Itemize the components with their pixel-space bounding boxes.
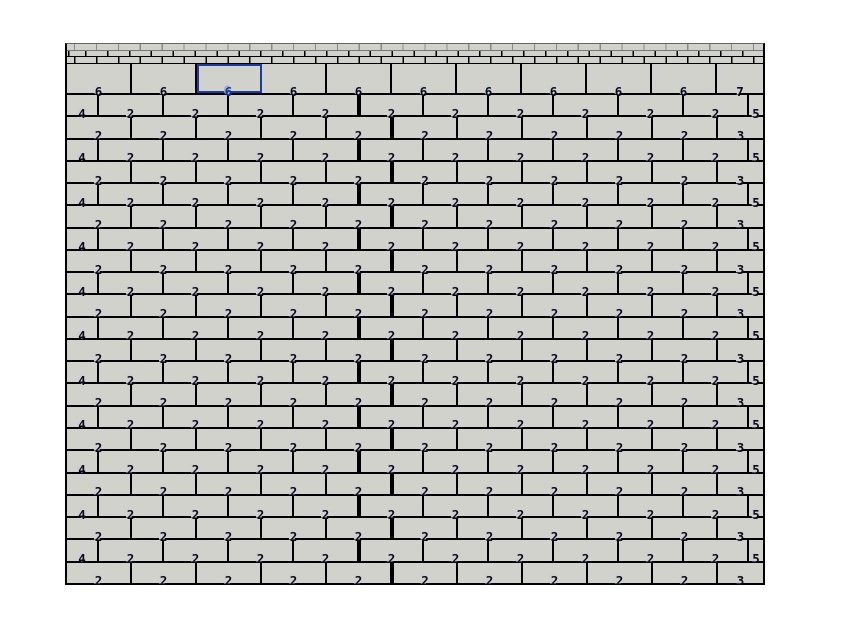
grid-cell[interactable]: 3 xyxy=(718,340,763,360)
grid-cell[interactable]: 2 xyxy=(523,117,588,137)
grid-cell[interactable]: 2 xyxy=(229,318,294,338)
grid-cell[interactable]: 2 xyxy=(523,429,588,449)
grid-cell[interactable]: 2 xyxy=(458,563,523,583)
grid-row-four: 422222222225 xyxy=(67,95,763,117)
grid-cell[interactable]: 2 xyxy=(653,429,718,449)
grid-cell[interactable]: 2 xyxy=(294,318,359,338)
grid-cell[interactable]: 2 xyxy=(361,451,424,471)
grid-cell[interactable]: 2 xyxy=(653,251,718,271)
grid-cell[interactable]: 2 xyxy=(619,362,684,382)
grid-cell[interactable]: 2 xyxy=(588,429,653,449)
grid-cell[interactable]: 5 xyxy=(749,451,763,471)
grid-cell[interactable]: 2 xyxy=(424,229,489,249)
grid-cell-label: 2 xyxy=(355,575,363,588)
grid-cell[interactable]: 2 xyxy=(197,340,262,360)
grid-cell[interactable]: 2 xyxy=(424,540,489,560)
grid-cell[interactable]: 2 xyxy=(67,563,132,583)
grid-cell[interactable]: 2 xyxy=(588,117,653,137)
grid-cell[interactable]: 2 xyxy=(164,451,229,471)
grid-cell[interactable]: 2 xyxy=(458,384,523,404)
grid-cell[interactable]: 2 xyxy=(684,229,749,249)
grid-cell[interactable]: 3 xyxy=(718,518,763,538)
grid-cell[interactable]: 2 xyxy=(229,95,294,115)
grid-cell[interactable]: 2 xyxy=(653,518,718,538)
grid-cell[interactable]: 2 xyxy=(294,496,359,516)
grid-cell[interactable]: 2 xyxy=(458,340,523,360)
grid-cell[interactable]: 6 xyxy=(392,64,457,93)
grid-cell[interactable]: 2 xyxy=(197,429,262,449)
grid-cell[interactable]: 2 xyxy=(394,429,458,449)
grid-cell[interactable]: 2 xyxy=(554,140,619,160)
grid-cell[interactable]: 2 xyxy=(132,429,197,449)
grid-cell[interactable]: 2 xyxy=(554,496,619,516)
grid-cell[interactable]: 2 xyxy=(361,318,424,338)
grid-cell[interactable]: 2 xyxy=(523,474,588,494)
grid-cell[interactable]: 2 xyxy=(394,563,458,583)
grid-cell[interactable]: 2 xyxy=(684,273,749,293)
grid-cell[interactable]: 2 xyxy=(424,273,489,293)
grid-cell[interactable]: 2 xyxy=(67,340,132,360)
grid-cell[interactable]: 2 xyxy=(523,251,588,271)
grid-cell[interactable]: 2 xyxy=(294,229,359,249)
grid-cell[interactable]: 2 xyxy=(99,540,164,560)
grid-cell[interactable]: 2 xyxy=(197,518,262,538)
grid-cell[interactable]: 4 xyxy=(67,184,99,204)
grid-cell-label: 2 xyxy=(160,575,168,588)
grid-cell[interactable]: 2 xyxy=(164,496,229,516)
grid-cell[interactable]: 2 xyxy=(458,162,523,182)
grid-cell[interactable]: 2 xyxy=(327,251,392,271)
grid-cell[interactable]: 2 xyxy=(229,273,294,293)
grid-cell[interactable]: 2 xyxy=(262,295,327,315)
grid-cell[interactable]: 2 xyxy=(653,117,718,137)
grid-cell[interactable]: 2 xyxy=(619,273,684,293)
grid-cell[interactable]: 2 xyxy=(424,140,489,160)
grid-cell[interactable]: 2 xyxy=(229,140,294,160)
grid-cell[interactable]: 2 xyxy=(99,407,164,427)
grid-cell[interactable]: 2 xyxy=(653,206,718,226)
grid-cell[interactable]: 2 xyxy=(132,206,197,226)
grid-cell[interactable]: 2 xyxy=(67,251,132,271)
grid-cell[interactable]: 2 xyxy=(197,295,262,315)
grid-cell[interactable]: 2 xyxy=(164,140,229,160)
grid-cell[interactable]: 7 xyxy=(717,64,763,93)
grid-cell[interactable]: 2 xyxy=(588,563,653,583)
grid-cell[interactable]: 6 xyxy=(457,64,522,93)
grid-cell[interactable]: 2 xyxy=(523,563,588,583)
grid-cell[interactable]: 2 xyxy=(294,184,359,204)
grid-cell[interactable]: 3 xyxy=(718,251,763,271)
grid-cell[interactable]: 2 xyxy=(619,540,684,560)
grid-cell[interactable]: 2 xyxy=(67,429,132,449)
grid-cell[interactable]: 3 xyxy=(718,474,763,494)
grid-cell[interactable]: 5 xyxy=(749,229,763,249)
grid-cell[interactable]: 2 xyxy=(197,384,262,404)
grid-cell[interactable]: 2 xyxy=(394,117,458,137)
grid-cell[interactable]: 2 xyxy=(653,295,718,315)
grid-cell[interactable]: 2 xyxy=(523,162,588,182)
grid-cell[interactable]: 2 xyxy=(197,251,262,271)
grid-cell[interactable]: 2 xyxy=(394,384,458,404)
grid-cell[interactable]: 5 xyxy=(749,362,763,382)
grid-row-two: 22222222223 xyxy=(67,429,763,451)
grid-cell[interactable]: 2 xyxy=(424,318,489,338)
grid-row-two: 22222222223 xyxy=(67,162,763,184)
grid-cell[interactable]: 2 xyxy=(489,407,554,427)
grid-cell[interactable]: 2 xyxy=(588,340,653,360)
grid-cell[interactable]: 4 xyxy=(67,140,99,160)
grid-row-four: 422222222225 xyxy=(67,229,763,251)
grid-cell[interactable]: 2 xyxy=(262,474,327,494)
grid-cell[interactable]: 2 xyxy=(67,117,132,137)
grid-cell[interactable]: 2 xyxy=(229,407,294,427)
grid-cell[interactable]: 2 xyxy=(489,540,554,560)
grid-cell-label: 2 xyxy=(681,575,689,588)
grid-cell[interactable]: 6 xyxy=(262,64,327,93)
grid-cell[interactable]: 2 xyxy=(394,206,458,226)
grid-cell[interactable]: 2 xyxy=(132,251,197,271)
grid-cell[interactable]: 2 xyxy=(294,540,359,560)
grid-cell[interactable]: 2 xyxy=(164,407,229,427)
grid-cell[interactable]: 2 xyxy=(132,384,197,404)
grid-cell[interactable]: 2 xyxy=(684,496,749,516)
grid-cell[interactable]: 2 xyxy=(653,162,718,182)
header-course-1 xyxy=(67,44,763,51)
grid-cell[interactable]: 2 xyxy=(684,451,749,471)
grid-cell[interactable]: 5 xyxy=(749,95,763,115)
grid-cell[interactable]: 2 xyxy=(394,251,458,271)
grid-cell[interactable]: 2 xyxy=(229,451,294,471)
grid-cell[interactable]: 2 xyxy=(327,117,392,137)
grid-cell[interactable]: 2 xyxy=(361,407,424,427)
grid-cell[interactable]: 2 xyxy=(164,95,229,115)
grid-cell[interactable]: 2 xyxy=(394,295,458,315)
grid-cell[interactable]: 6 xyxy=(587,64,652,93)
grid-row-two: 22222222223 xyxy=(67,518,763,540)
grid-cell[interactable]: 2 xyxy=(684,95,749,115)
grid-cell[interactable]: 3 xyxy=(718,384,763,404)
grid-cell[interactable]: 2 xyxy=(262,518,327,538)
grid-cell[interactable]: 3 xyxy=(718,162,763,182)
grid-cell-label: 2 xyxy=(616,575,624,588)
grid-cell[interactable]: 3 xyxy=(718,429,763,449)
grid-cell[interactable]: 2 xyxy=(361,496,424,516)
grid-cell[interactable]: 2 xyxy=(327,518,392,538)
grid-cell[interactable]: 2 xyxy=(458,518,523,538)
grid-cell[interactable]: 5 xyxy=(749,184,763,204)
grid-cell[interactable]: 6 xyxy=(132,64,197,93)
grid-cell[interactable]: 2 xyxy=(458,117,523,137)
grid-cell[interactable]: 2 xyxy=(619,229,684,249)
grid-row-four: 422222222225 xyxy=(67,540,763,562)
grid-cell[interactable]: 2 xyxy=(294,273,359,293)
grid-cell[interactable]: 2 xyxy=(489,496,554,516)
grid-row-two: 22222222223 xyxy=(67,295,763,317)
grid-row-two: 22222222223 xyxy=(67,206,763,228)
grid-cell[interactable]: 2 xyxy=(164,184,229,204)
grid-row-two: 22222222223 xyxy=(67,563,763,583)
header-band xyxy=(67,44,763,64)
grid-cell[interactable]: 2 xyxy=(653,340,718,360)
grid-cell[interactable]: 2 xyxy=(262,206,327,226)
grid-cell[interactable]: 2 xyxy=(458,474,523,494)
grid-cell[interactable]: 6 xyxy=(522,64,587,93)
grid-cell[interactable]: 2 xyxy=(361,540,424,560)
grid-cell[interactable]: 2 xyxy=(294,407,359,427)
grid-cell-label: 3 xyxy=(737,575,745,588)
grid-cell[interactable]: 2 xyxy=(67,518,132,538)
grid-cell[interactable]: 2 xyxy=(588,162,653,182)
grid-row-two: 22222222223 xyxy=(67,474,763,496)
grid-cell[interactable]: 2 xyxy=(554,407,619,427)
grid-cell[interactable]: 2 xyxy=(554,540,619,560)
grid-cell[interactable]: 4 xyxy=(67,362,99,382)
grid-cell[interactable]: 2 xyxy=(458,206,523,226)
grid-cell-label: 2 xyxy=(486,575,494,588)
brick-wall-grid: 6666666666742222222222522222222223422222… xyxy=(65,43,765,585)
grid-cell[interactable]: 2 xyxy=(489,362,554,382)
grid-cell[interactable]: 2 xyxy=(619,407,684,427)
grid-cell[interactable]: 5 xyxy=(749,407,763,427)
grid-cell[interactable]: 4 xyxy=(67,229,99,249)
grid-cell[interactable]: 4 xyxy=(67,407,99,427)
grid-cell[interactable]: 2 xyxy=(619,184,684,204)
grid-row-four: 422222222225 xyxy=(67,496,763,518)
grid-cell[interactable]: 2 xyxy=(619,318,684,338)
grid-cell[interactable]: 2 xyxy=(588,295,653,315)
grid-cell[interactable]: 2 xyxy=(523,518,588,538)
grid-cell[interactable]: 2 xyxy=(262,117,327,137)
grid-cell[interactable]: 2 xyxy=(197,474,262,494)
grid-cell[interactable]: 2 xyxy=(99,140,164,160)
grid-cell[interactable]: 2 xyxy=(197,206,262,226)
grid-row-four: 422222222225 xyxy=(67,362,763,384)
grid-row-four: 422222222225 xyxy=(67,140,763,162)
grid-cell[interactable]: 5 xyxy=(749,273,763,293)
grid-cell[interactable]: 3 xyxy=(718,206,763,226)
grid-row-four: 422222222225 xyxy=(67,318,763,340)
grid-cell[interactable]: 2 xyxy=(554,184,619,204)
grid-cell[interactable]: 2 xyxy=(262,340,327,360)
grid-cell[interactable]: 6 xyxy=(67,64,132,93)
grid-cell[interactable]: 2 xyxy=(327,206,392,226)
grid-cell[interactable]: 2 xyxy=(653,563,718,583)
grid-cell[interactable]: 2 xyxy=(361,229,424,249)
grid-cell[interactable]: 5 xyxy=(749,540,763,560)
grid-cell[interactable]: 2 xyxy=(262,429,327,449)
grid-cell[interactable]: 2 xyxy=(554,318,619,338)
header-course-3 xyxy=(67,57,763,64)
grid-cell[interactable]: 4 xyxy=(67,496,99,516)
grid-cell[interactable]: 2 xyxy=(229,540,294,560)
grid-cell[interactable]: 2 xyxy=(164,229,229,249)
grid-cell[interactable]: 2 xyxy=(523,340,588,360)
grid-cell[interactable]: 4 xyxy=(67,95,99,115)
grid-cell[interactable]: 2 xyxy=(67,384,132,404)
grid-cell[interactable]: 2 xyxy=(523,295,588,315)
grid-cell[interactable]: 2 xyxy=(327,429,392,449)
grid-cell[interactable]: 2 xyxy=(684,184,749,204)
grid-cell[interactable]: 2 xyxy=(327,295,392,315)
grid-cell[interactable]: 2 xyxy=(361,184,424,204)
grid-cell[interactable]: 5 xyxy=(749,496,763,516)
grid-cell[interactable]: 2 xyxy=(424,184,489,204)
grid-cell[interactable]: 2 xyxy=(99,451,164,471)
grid-cell[interactable]: 2 xyxy=(197,563,262,583)
grid-cell[interactable]: 2 xyxy=(361,362,424,382)
grid-cell[interactable]: 2 xyxy=(489,318,554,338)
grid-cell[interactable]: 2 xyxy=(99,362,164,382)
grid-cell[interactable]: 2 xyxy=(132,295,197,315)
grid-cell[interactable]: 2 xyxy=(523,206,588,226)
grid-cell[interactable]: 2 xyxy=(653,384,718,404)
grid-cell[interactable]: 2 xyxy=(554,95,619,115)
grid-cell[interactable]: 2 xyxy=(327,162,392,182)
grid-cell[interactable]: 4 xyxy=(67,451,99,471)
grid-cell[interactable]: 2 xyxy=(361,273,424,293)
grid-cell[interactable]: 4 xyxy=(67,273,99,293)
grid-cell[interactable]: 4 xyxy=(67,540,99,560)
selected-cell[interactable]: 6 xyxy=(197,64,262,93)
grid-cell[interactable]: 2 xyxy=(99,95,164,115)
grid-cell[interactable]: 2 xyxy=(164,540,229,560)
grid-cell[interactable]: 2 xyxy=(653,474,718,494)
grid-cell[interactable]: 2 xyxy=(684,140,749,160)
grid-cell[interactable]: 2 xyxy=(619,451,684,471)
grid-row-four: 422222222225 xyxy=(67,184,763,206)
grid-cell[interactable]: 2 xyxy=(361,95,424,115)
grid-cell[interactable]: 5 xyxy=(749,140,763,160)
grid-cell[interactable]: 2 xyxy=(132,117,197,137)
grid-cell[interactable]: 2 xyxy=(197,162,262,182)
grid-cell[interactable]: 2 xyxy=(489,451,554,471)
grid-cell[interactable]: 4 xyxy=(67,318,99,338)
grid-cell[interactable]: 2 xyxy=(132,340,197,360)
grid-cell[interactable]: 2 xyxy=(489,95,554,115)
grid-cell[interactable]: 2 xyxy=(394,474,458,494)
grid-cell[interactable]: 2 xyxy=(554,362,619,382)
grid-cell[interactable]: 2 xyxy=(554,451,619,471)
grid-cell[interactable]: 2 xyxy=(67,162,132,182)
grid-row-two: 22222222223 xyxy=(67,384,763,406)
grid-cell[interactable]: 2 xyxy=(424,407,489,427)
grid-cell[interactable]: 2 xyxy=(164,273,229,293)
grid-cell[interactable]: 2 xyxy=(132,518,197,538)
grid-row-two: 22222222223 xyxy=(67,117,763,139)
grid-cell[interactable]: 2 xyxy=(99,229,164,249)
grid-row-two: 22222222223 xyxy=(67,340,763,362)
grid-cell[interactable]: 2 xyxy=(132,162,197,182)
grid-cell[interactable]: 2 xyxy=(327,340,392,360)
grid-cell[interactable]: 2 xyxy=(619,140,684,160)
grid-cell[interactable]: 2 xyxy=(619,496,684,516)
grid-cell[interactable]: 2 xyxy=(684,318,749,338)
grid-cell[interactable]: 2 xyxy=(262,384,327,404)
grid-cell[interactable]: 2 xyxy=(99,496,164,516)
grid-cell[interactable]: 2 xyxy=(458,295,523,315)
grid-cell[interactable]: 2 xyxy=(554,229,619,249)
grid-cell[interactable]: 2 xyxy=(262,251,327,271)
grid-cell[interactable]: 2 xyxy=(458,251,523,271)
grid-cell[interactable]: 3 xyxy=(718,563,763,583)
grid-cell-label: 2 xyxy=(421,575,429,588)
grid-cell[interactable]: 2 xyxy=(294,140,359,160)
grid-cell[interactable]: 2 xyxy=(132,474,197,494)
grid-cell[interactable]: 2 xyxy=(394,162,458,182)
grid-cell[interactable]: 2 xyxy=(99,273,164,293)
grid-cell[interactable]: 2 xyxy=(588,206,653,226)
grid-cell[interactable]: 2 xyxy=(489,140,554,160)
grid-cell[interactable]: 2 xyxy=(424,451,489,471)
grid-cell-label: 2 xyxy=(95,575,103,588)
grid-cell[interactable]: 2 xyxy=(424,95,489,115)
grid-cell[interactable]: 6 xyxy=(652,64,717,93)
grid-cell[interactable]: 6 xyxy=(327,64,392,93)
grid-cell[interactable]: 2 xyxy=(132,563,197,583)
grid-cell[interactable]: 2 xyxy=(164,318,229,338)
grid-cell[interactable]: 2 xyxy=(361,140,424,160)
grid-cell[interactable]: 2 xyxy=(489,229,554,249)
grid-row-four: 422222222225 xyxy=(67,273,763,295)
grid-cell[interactable]: 2 xyxy=(262,162,327,182)
grid-cell[interactable]: 2 xyxy=(164,362,229,382)
grid-cell[interactable]: 2 xyxy=(197,117,262,137)
grid-cell[interactable]: 3 xyxy=(718,295,763,315)
grid-cell[interactable]: 2 xyxy=(684,362,749,382)
grid-cell-label: 2 xyxy=(290,575,298,588)
grid-cell[interactable]: 2 xyxy=(424,496,489,516)
grid-cell[interactable]: 5 xyxy=(749,318,763,338)
grid-cell[interactable]: 2 xyxy=(588,518,653,538)
grid-cell[interactable]: 2 xyxy=(294,451,359,471)
grid-cell[interactable]: 2 xyxy=(294,95,359,115)
grid-cell[interactable]: 2 xyxy=(229,229,294,249)
grid-cell[interactable]: 2 xyxy=(67,295,132,315)
grid-cell[interactable]: 2 xyxy=(294,362,359,382)
grid-cell[interactable]: 2 xyxy=(684,540,749,560)
grid-cell[interactable]: 2 xyxy=(229,496,294,516)
grid-cell[interactable]: 2 xyxy=(489,184,554,204)
grid-cell[interactable]: 2 xyxy=(99,318,164,338)
grid-cell[interactable]: 2 xyxy=(229,362,294,382)
grid-cell-label: 2 xyxy=(551,575,559,588)
grid-cell[interactable]: 2 xyxy=(327,474,392,494)
grid-cell[interactable]: 2 xyxy=(67,474,132,494)
grid-cell[interactable]: 2 xyxy=(554,273,619,293)
grid-cell[interactable]: 2 xyxy=(588,251,653,271)
grid-cell[interactable]: 2 xyxy=(619,95,684,115)
grid-cell[interactable]: 2 xyxy=(394,518,458,538)
grid-row-two: 22222222223 xyxy=(67,251,763,273)
grid-cell[interactable]: 2 xyxy=(684,407,749,427)
grid-cell[interactable]: 3 xyxy=(718,117,763,137)
grid-cell[interactable]: 2 xyxy=(588,474,653,494)
grid-cell[interactable]: 2 xyxy=(262,563,327,583)
grid-cell[interactable]: 2 xyxy=(229,184,294,204)
grid-cell[interactable]: 2 xyxy=(327,563,392,583)
grid-cell[interactable]: 2 xyxy=(394,340,458,360)
grid-cell[interactable]: 2 xyxy=(327,384,392,404)
grid-cell[interactable]: 2 xyxy=(588,384,653,404)
grid-cell[interactable]: 2 xyxy=(523,384,588,404)
grid-row-four: 422222222225 xyxy=(67,451,763,473)
grid-cell[interactable]: 2 xyxy=(489,273,554,293)
grid-cell[interactable]: 2 xyxy=(424,362,489,382)
grid-cell[interactable]: 2 xyxy=(99,184,164,204)
grid-cell[interactable]: 2 xyxy=(67,206,132,226)
header-course-2 xyxy=(67,51,763,58)
grid-cell[interactable]: 2 xyxy=(458,429,523,449)
